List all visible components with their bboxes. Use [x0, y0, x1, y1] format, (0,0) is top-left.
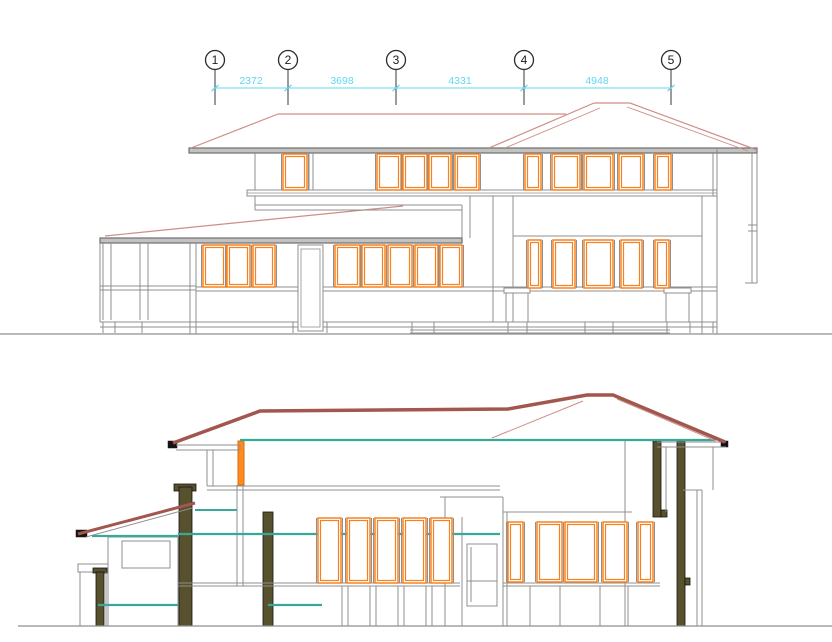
grid-dimensions: 123452372369843314948 [206, 51, 681, 106]
window-frame [374, 518, 400, 583]
window-frame [454, 154, 481, 190]
elevation-layer-1 [0, 103, 832, 334]
window-frame [414, 245, 440, 287]
window-frame [346, 518, 372, 583]
grid-bubble-label: 4 [521, 53, 528, 67]
cad-canvas: 123452372369843314948 [0, 0, 832, 642]
window-frame [282, 154, 309, 190]
grid-bubble-5: 5 [662, 51, 681, 106]
window-frame [564, 522, 599, 582]
window-frame [618, 154, 645, 190]
dimension-label: 4948 [585, 75, 609, 87]
window-frame [583, 154, 615, 190]
building-section [18, 395, 832, 626]
grid-bubble-4: 4 [515, 51, 534, 106]
window-frame [439, 245, 464, 287]
window-frame [654, 154, 673, 190]
window-frame [507, 522, 525, 582]
window-frame [583, 240, 615, 288]
window-frame [428, 154, 453, 190]
window-frame [376, 154, 403, 190]
grid-bubble-label: 3 [393, 53, 400, 67]
grid-bubble-label: 5 [668, 53, 675, 67]
grid-bubble-label: 1 [212, 53, 219, 67]
window-frame [551, 154, 582, 190]
window-frame [524, 154, 543, 190]
window-frame [402, 518, 428, 583]
window-frame [536, 522, 564, 582]
window-frame [402, 154, 429, 190]
grid-bubble-1: 1 [206, 51, 225, 106]
window-frame [602, 522, 629, 582]
window-frame [552, 240, 577, 288]
window-frame [317, 518, 343, 583]
front-elevation [0, 103, 832, 334]
window-frame [430, 518, 454, 583]
architectural-drawing-svg: 123452372369843314948 [0, 0, 832, 642]
grid-bubble-3: 3 [387, 51, 406, 106]
grid-bubble-2: 2 [279, 51, 298, 106]
window-frame [620, 240, 644, 288]
section-layer-2 [78, 395, 725, 605]
window-frame [361, 245, 387, 287]
window-frame [226, 245, 252, 287]
window-frame [387, 245, 414, 287]
window-frame [654, 240, 671, 288]
window-frame [202, 245, 228, 287]
window-frame [252, 245, 277, 287]
window-frame [637, 522, 655, 582]
grid-bubble-label: 2 [285, 53, 292, 67]
window-frame [527, 240, 543, 288]
window-frame [334, 245, 362, 287]
dimension-label: 2372 [239, 75, 263, 87]
dimension-label: 3698 [330, 75, 354, 87]
dimension-label: 4331 [448, 75, 472, 87]
